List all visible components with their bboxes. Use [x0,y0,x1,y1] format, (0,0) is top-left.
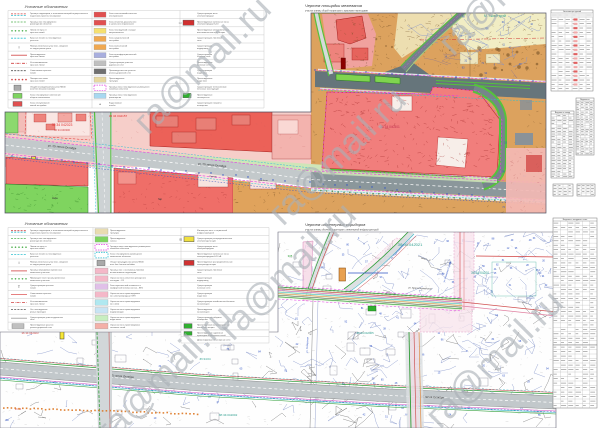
svg-text:тротуары: тротуары [110,232,120,234]
svg-text:Существующие улично-дорожные: Существующие улично-дорожные [30,317,64,319]
svg-text:Зб:34:042002: Зб:34:042002 [219,413,238,417]
svg-text:подготовка проекта планировки: подготовка проекта планировки [30,16,61,18]
svg-text:красные линии: красные линии [30,303,45,305]
svg-text:размещения объектов: размещения объектов [30,24,52,26]
svg-text:водопровод: водопровод [197,280,209,282]
svg-text:36 34 042023: 36 34 042023 [21,331,39,335]
svg-text:Дом быта: Дом быта [258,180,268,182]
svg-text:общего пользования: общего пользования [30,97,50,99]
svg-text:участках: участках [30,40,39,42]
svg-text:Чертеж площадки межевания: Чертеж площадки межевания [305,3,363,8]
svg-text:зон электропередачи ЛЭП: зон электропередачи ЛЭП [110,296,136,298]
svg-text:линии: линии [30,72,37,74]
svg-text:размещения объектов: размещения объектов [30,240,52,242]
svg-text:инфраструктурой: инфраструктурой [197,231,215,234]
svg-text:36 34 042023: 36 34 042023 [52,123,73,127]
svg-text:использования территории: использования территории [110,272,137,274]
svg-text:водостоки: водостоки [197,296,208,298]
svg-text:подготовка проекта планировки: подготовка проекта планировки [30,232,61,234]
svg-text:красные линии: красные линии [30,56,45,58]
svg-text:осей без бланков забойки: осей без бланков забойки [30,88,56,91]
svg-text:линейных объектов: линейных объектов [110,247,130,250]
svg-text:земельных участков: земельных участков [30,280,51,282]
svg-text:теплотрассы: теплотрассы [197,97,210,99]
svg-text:Экспликация зданий: Экспликация зданий [563,10,581,13]
svg-text:обслуживания: обслуживания [109,16,123,18]
svg-text:тепловых сетей: тепловых сетей [110,326,126,329]
svg-text:метрополитена: метрополитена [109,32,125,34]
svg-text:красных линий: красных линий [30,80,45,83]
svg-text:размещения: размещения [109,97,121,99]
svg-text:Зб:34:04200: Зб:34:04200 [471,271,489,275]
svg-text:комфортной безопасностью - ВП1: комфортной безопасностью - ВП1 [110,287,144,290]
svg-text:электроподстанции: электроподстанции [197,264,217,266]
svg-text:наследия - ОЗ: наследия - ОЗ [110,280,125,282]
svg-text:газоны: газоны [110,240,117,242]
svg-text:красных линий: красных линий [30,247,45,250]
svg-text:застройки: застройки [109,39,119,42]
svg-text:Кафе: Кафе [52,197,59,200]
svg-text:36 34 040300: 36 34 040300 [54,128,70,132]
svg-text:земельных участков: земельных участков [30,272,51,274]
svg-text:застройки: застройки [109,47,119,50]
svg-text:красные линии: красные линии [30,64,45,66]
svg-text:Зб:34:042021: Зб:34:042021 [398,242,424,247]
svg-text:36 34 042157: 36 34 042157 [109,114,128,118]
svg-text:водостоков: водостоков [110,319,122,321]
svg-text:электропередачи: электропередачи [197,16,215,18]
svg-text:зон связи: зон связи [110,303,120,305]
svg-text:дорожные сети: дорожные сети [109,64,124,66]
svg-text:освещения: освещения [197,105,208,107]
svg-text:и школьного образования: и школьного образования [109,24,134,26]
svg-text:Условные обозначения: Условные обозначения [24,221,68,226]
svg-text:электроподстанции: электроподстанции [197,240,217,242]
svg-text:штабы: штабы [109,105,116,107]
svg-text:линии: линии [30,296,37,298]
svg-text:комплексов объектов: комплексов объектов [110,256,132,258]
svg-text:линейных объектов: линейных объектов [109,88,129,91]
svg-text:электропередачи: электропередачи [197,248,215,250]
svg-text:Руанда: Руанда [209,176,217,178]
svg-text:бытовые сети: бытовые сети [197,288,211,290]
svg-text:улиц и проездов: улиц и проездов [30,311,47,313]
svg-text:Зб:34:042005: Зб:34:042005 [356,331,374,335]
svg-text:линии: линии [30,288,37,290]
svg-text:застройки: застройки [109,55,119,58]
svg-text:всех без бланков забойки: всех без бланков забойки [110,263,136,266]
svg-text:на кадастровом учете: на кадастровом учете [30,264,52,266]
svg-text:улично-дорожной сети: улично-дорожной сети [109,71,132,74]
svg-text:жилой застройки: жилой застройки [30,104,47,107]
svg-text:участок границ общей территори: участок границ общей территории с красны… [305,10,369,13]
svg-text:на кадастровом учете: на кадастровом учете [30,48,52,50]
svg-text:водопроводов: водопроводов [110,311,125,313]
svg-text:электропередачи 6-10 кВ: электропередачи 6-10 кВ [197,256,222,258]
svg-text:красных линий: красных линий [30,31,45,34]
svg-text:улично-дорожной сети: улично-дорожной сети [30,326,53,329]
svg-text:Условные обозначения: Условные обозначения [24,4,68,9]
svg-text:(+): (+) [179,23,182,25]
svg-text:участках: участках [30,256,39,258]
svg-text:тротуары: тротуары [109,81,119,83]
